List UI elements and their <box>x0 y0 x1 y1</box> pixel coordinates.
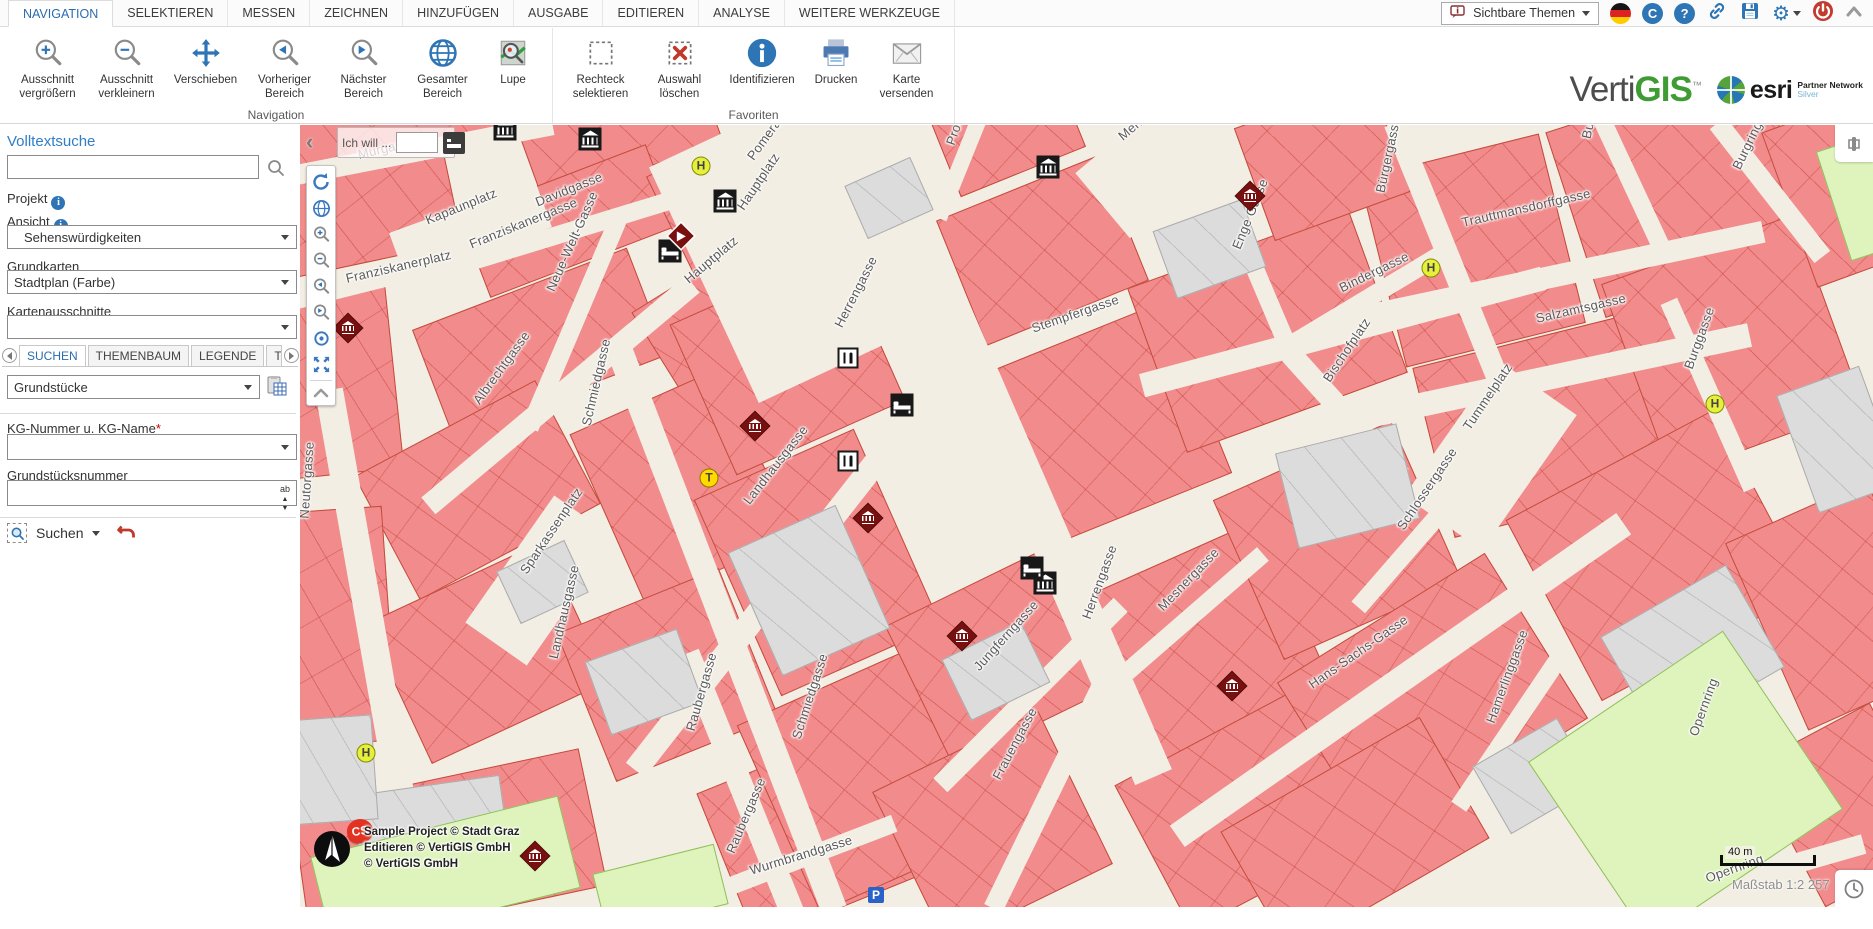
left-panel: Volltextsuche Projekti Ansichti Sehenswü… <box>0 125 300 929</box>
zoom-out-button[interactable]: Ausschnitt verkleinern <box>87 30 166 102</box>
autocomplete-ab-icon: ab▲▼ <box>280 485 290 512</box>
button-label: Karte versenden <box>867 74 946 102</box>
project-label: Projekti <box>7 191 65 210</box>
map-canvas[interactable]: MurgasseKapaunplatzDavidgasseFranziskane… <box>300 125 1873 907</box>
ich-will-input[interactable] <box>396 132 438 153</box>
ribbon-toolbar: Ausschnitt vergrößern Ausschnitt verklei… <box>0 28 1873 124</box>
full-extent-arrows-icon[interactable] <box>307 351 335 377</box>
collapse-ribbon-icon[interactable] <box>1845 4 1863 23</box>
search-selection-icon <box>7 523 27 543</box>
museum-icon <box>714 190 737 213</box>
street-label: Neutorgasse <box>300 441 317 519</box>
ich-will-widget: Ich will ... <box>337 127 455 158</box>
bus-stop-h-icon: H <box>1706 395 1725 414</box>
fulltext-search-icon[interactable] <box>266 158 286 181</box>
webgis-application: NAVIGATION SELEKTIEREN MESSEN ZEICHNEN H… <box>0 0 1873 929</box>
help-icon[interactable]: ? <box>1674 3 1695 24</box>
parking-icon: P <box>868 887 884 903</box>
tab-scroll-left-button[interactable] <box>2 348 17 363</box>
result-table-icon[interactable] <box>266 375 288 400</box>
tab-analyse[interactable]: ANALYSE <box>699 0 785 26</box>
divider <box>310 380 332 381</box>
globe-icon <box>426 34 460 72</box>
museum-diamond-icon <box>854 504 882 532</box>
map-green-area <box>592 844 728 907</box>
scale-bar-label: 40 m <box>1725 846 1755 859</box>
printer-icon <box>819 34 853 72</box>
search-button-label: Suchen <box>36 525 83 541</box>
identify-info-icon <box>745 34 779 72</box>
esri-wordmark: esri <box>1750 76 1792 105</box>
map-attribution: Sample Project © Stadt Graz Editieren © … <box>364 824 519 872</box>
panel-tab-legende[interactable]: LEGENDE <box>191 345 264 366</box>
chevron-down-icon <box>281 325 289 330</box>
logout-power-icon[interactable] <box>1812 0 1834 27</box>
bus-stop-h-icon: H <box>1422 259 1441 278</box>
chevron-down-icon <box>1582 11 1590 16</box>
restaurant-icon <box>838 451 859 472</box>
museum-icon <box>579 128 602 151</box>
bus-stop-h-icon: H <box>357 744 376 763</box>
panel-tab-strip: SUCHEN THEMENBAUM LEGENDE THEMEN <box>2 345 298 367</box>
save-session-icon[interactable] <box>1739 0 1761 27</box>
search-button[interactable]: Suchen <box>7 523 136 543</box>
zoom-in-small-icon[interactable] <box>307 221 335 247</box>
hotel-icon <box>1021 557 1044 580</box>
toolbar-group-navigation: Ausschnitt vergrößern Ausschnitt verklei… <box>0 28 553 123</box>
basemap-select[interactable]: Stadtplan (Farbe) <box>7 270 297 294</box>
clear-selection-button[interactable]: Auswahl löschen <box>640 30 719 102</box>
map-gray-building <box>300 714 379 826</box>
toolbar-group-label: Favoriten <box>553 108 954 122</box>
collapse-map-toolbar-chevron[interactable] <box>307 384 335 402</box>
previous-extent-icon <box>269 34 301 72</box>
ribbon-right-controls: Sichtbare Themen C ? ⚙ <box>1441 0 1873 26</box>
tab-scroll-right-button[interactable] <box>284 348 299 363</box>
museum-diamond-icon <box>1218 672 1246 700</box>
button-label: Verschieben <box>174 74 237 88</box>
project-info-icon[interactable]: i <box>51 196 65 210</box>
view-select[interactable]: Sehenswürdigkeiten <box>7 225 297 249</box>
button-label: Auswahl löschen <box>640 74 719 102</box>
next-extent-button[interactable]: Nächster Bereich <box>324 30 403 102</box>
ich-will-go-button[interactable] <box>443 132 465 154</box>
select-rectangle-button[interactable]: Rechteck selektieren <box>561 30 640 102</box>
tab-selektieren[interactable]: SELEKTIEREN <box>113 0 228 26</box>
museum-icon <box>494 125 517 141</box>
button-label: Ausschnitt verkleinern <box>87 74 166 102</box>
zoom-in-button[interactable]: Ausschnitt vergrößern <box>8 30 87 102</box>
toolbar-group-label: Navigation <box>0 108 552 122</box>
panel-tab-suchen[interactable]: SUCHEN <box>19 345 86 366</box>
visible-themes-dropdown[interactable]: Sichtbare Themen <box>1441 2 1599 25</box>
fulltext-search-input[interactable] <box>7 155 259 179</box>
ribbon-tab-bar: NAVIGATION SELEKTIEREN MESSEN ZEICHNEN H… <box>0 0 1873 27</box>
tab-messen[interactable]: MESSEN <box>228 0 310 26</box>
divider <box>0 517 296 518</box>
settings-dropdown[interactable]: ⚙ <box>1772 3 1801 23</box>
chevron-down-icon <box>281 235 289 240</box>
button-label: Lupe <box>500 74 526 88</box>
previous-extent-small-icon[interactable] <box>307 273 335 299</box>
previous-extent-button[interactable]: Vorheriger Bereich <box>245 30 324 102</box>
button-label: Vorheriger Bereich <box>245 74 324 102</box>
locate-icon[interactable] <box>307 325 335 351</box>
tab-hinzufuegen[interactable]: HINZUFÜGEN <box>403 0 514 26</box>
overview-map-button[interactable] <box>1835 125 1873 162</box>
museum-diamond-icon <box>334 314 362 342</box>
museum-diamond-icon <box>1236 182 1264 210</box>
scale-text: Maßstab 1:2 257 <box>1732 877 1830 892</box>
map-magnifier-icon <box>497 34 529 72</box>
print-button[interactable]: Drucken <box>805 30 867 88</box>
restaurant-icon <box>838 348 859 369</box>
chevron-down-icon <box>244 385 252 390</box>
museum-icon <box>1037 156 1060 179</box>
magnifier-window-button[interactable]: Lupe <box>482 30 544 88</box>
scale-bar: 40 m <box>1720 855 1816 866</box>
language-german-flag-icon[interactable] <box>1610 3 1631 24</box>
vertigis-logo: VertiGIS™ <box>1570 70 1701 110</box>
clear-selection-x-icon <box>664 34 696 72</box>
toolbar-group-favoriten: Rechteck selektieren Auswahl löschen Ide… <box>553 28 955 123</box>
move-arrows-icon <box>190 34 222 72</box>
zoom-out-small-icon[interactable] <box>307 247 335 273</box>
zoom-out-icon <box>111 34 143 72</box>
button-label: Nächster Bereich <box>324 74 403 102</box>
esri-globe-icon <box>1717 76 1745 104</box>
full-extent-button[interactable]: Gesamter Bereich <box>403 30 482 102</box>
info-bubble-icon <box>1450 5 1466 22</box>
divider <box>0 413 296 414</box>
button-label: Ausschnitt vergrößern <box>8 74 87 102</box>
tab-navigation[interactable]: NAVIGATION <box>8 0 113 27</box>
chevron-down-icon <box>1793 11 1801 16</box>
search-theme-select[interactable]: Grundstücke <box>7 375 260 399</box>
tram-stop-t-icon: T <box>700 469 719 488</box>
chevron-down-icon <box>281 445 289 450</box>
chevron-down-icon <box>92 531 100 536</box>
panel-tab-themenbaum[interactable]: THEMENBAUM <box>88 345 189 366</box>
tab-weitere-werkzeuge[interactable]: WEITERE WERKZEUGE <box>785 0 955 26</box>
tab-ausgabe[interactable]: AUSGABE <box>514 0 603 26</box>
kg-number-select[interactable] <box>7 434 297 460</box>
copyright-c-icon[interactable]: C <box>1642 3 1663 24</box>
fulltext-search-heading: Volltextsuche <box>7 133 95 150</box>
parcel-number-input[interactable]: ab▲▼ <box>7 480 297 506</box>
ribbon-tabs: NAVIGATION SELEKTIEREN MESSEN ZEICHNEN H… <box>0 0 955 26</box>
history-clock-button[interactable] <box>1835 870 1873 907</box>
museum-diamond-icon <box>948 622 976 650</box>
refresh-icon[interactable] <box>307 169 335 195</box>
museum-diamond-icon <box>741 412 769 440</box>
collapse-sidebar-chevron[interactable]: ‹ <box>306 131 313 153</box>
museum-diamond-icon <box>521 842 549 870</box>
identify-button[interactable]: Identifizieren <box>719 30 805 88</box>
ich-will-label: Ich will ... <box>342 136 391 150</box>
pan-button[interactable]: Verschieben <box>166 30 245 88</box>
send-map-button[interactable]: Karte versenden <box>867 30 946 102</box>
dashed-rectangle-icon <box>585 34 617 72</box>
brand-area: VertiGIS™ esri Partner Network Silver <box>1570 70 1864 110</box>
gear-icon: ⚙ <box>1772 3 1790 23</box>
button-label: Identifizieren <box>729 74 794 88</box>
esri-logo: esri Partner Network Silver <box>1717 76 1863 105</box>
share-link-icon[interactable] <box>1706 0 1728 27</box>
map-extent-select[interactable] <box>7 315 297 339</box>
globe-small-icon[interactable] <box>307 195 335 221</box>
tab-zeichnen[interactable]: ZEICHNEN <box>310 0 403 26</box>
hotel-icon <box>891 394 914 417</box>
next-extent-small-icon[interactable] <box>307 299 335 325</box>
reset-undo-icon[interactable] <box>117 523 136 543</box>
map-vertical-toolbar <box>306 165 336 406</box>
panel-tab-themen-truncated[interactable]: THEMEN <box>266 345 282 366</box>
zoom-in-icon <box>32 34 64 72</box>
tab-editieren[interactable]: EDITIEREN <box>603 0 699 26</box>
button-label: Gesamter Bereich <box>403 74 482 102</box>
envelope-icon <box>890 34 924 72</box>
esri-partner-tier: Silver <box>1797 90 1863 99</box>
visible-themes-label: Sichtbare Themen <box>1473 6 1575 20</box>
bus-stop-h-icon: H <box>692 157 711 176</box>
button-label: Rechteck selektieren <box>561 74 640 102</box>
next-extent-icon <box>348 34 380 72</box>
button-label: Drucken <box>815 74 858 88</box>
chevron-down-icon <box>281 280 289 285</box>
compass-rose <box>313 830 351 873</box>
